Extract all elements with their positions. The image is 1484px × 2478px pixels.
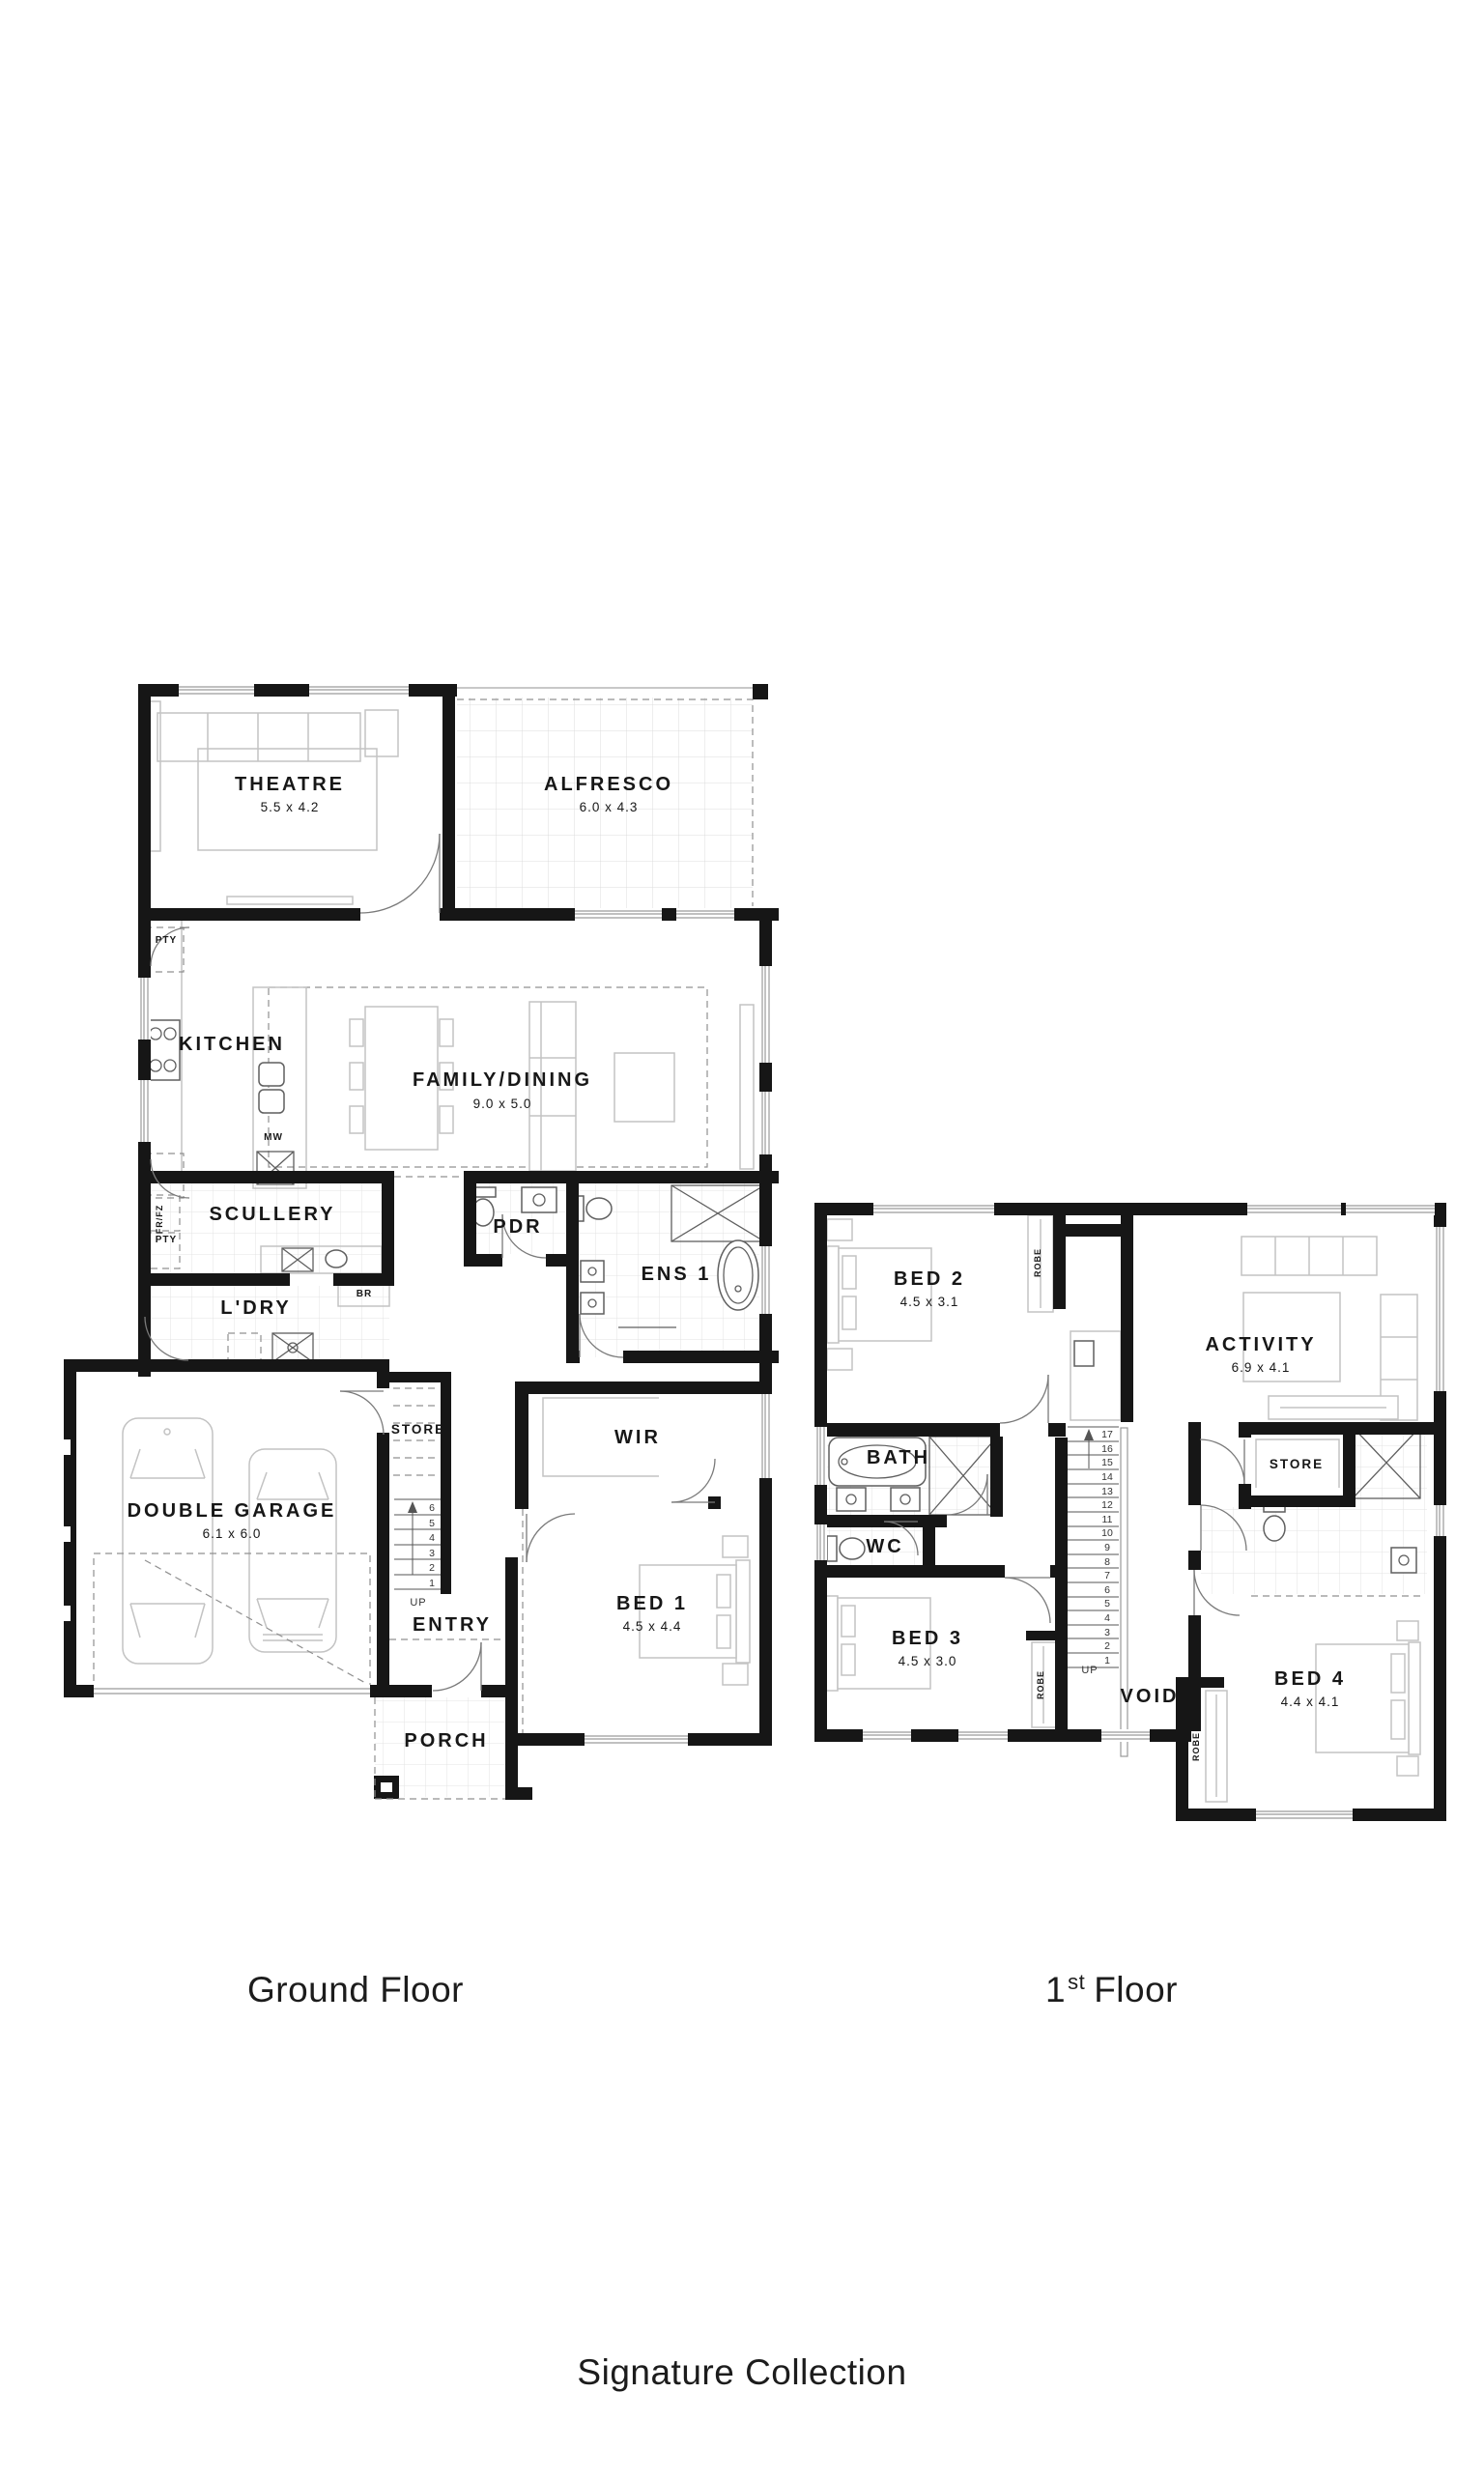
room-dims-bed4: 4.4 x 4.1 — [1281, 1695, 1340, 1709]
first-floor-ordinal: st — [1068, 1970, 1085, 1994]
stair-number: 12 — [1101, 1499, 1113, 1511]
window — [759, 1394, 772, 1478]
stair-number: 2 — [1104, 1640, 1110, 1652]
room-label-family-dining: FAMILY/DINING — [413, 1069, 592, 1091]
window — [1256, 1809, 1353, 1821]
first-floor-word: Floor — [1094, 1970, 1178, 2009]
room-label-store-ground: STORE — [391, 1422, 445, 1437]
stair-number: 1 — [429, 1578, 435, 1589]
window — [585, 1733, 688, 1746]
stair-number: 5 — [429, 1518, 435, 1529]
theatre-sofa — [157, 713, 360, 761]
stair-number: 3 — [1104, 1627, 1110, 1638]
ens2-basin — [1391, 1548, 1416, 1573]
room-dims-bed1: 4.5 x 4.4 — [623, 1619, 682, 1634]
car-2 — [249, 1449, 336, 1652]
bed4-side-table-2 — [1397, 1756, 1418, 1776]
room-dims-theatre: 5.5 x 4.2 — [261, 800, 320, 814]
bed2-headboard — [827, 1246, 839, 1343]
bed2-pillow-1 — [842, 1256, 856, 1289]
bed2-side-table-2 — [827, 1349, 852, 1370]
ens1-basin-1 — [581, 1261, 604, 1282]
stair-number: 13 — [1101, 1486, 1113, 1497]
room-label-entry: ENTRY — [413, 1614, 492, 1636]
stair-arrow-head — [1084, 1429, 1094, 1440]
window — [873, 1203, 994, 1215]
stair-number: 5 — [1104, 1598, 1110, 1609]
floorplan-canvas: THEATRE 5.5 x 4.2 ALFRESCO 6.0 x 4.3 KIT… — [0, 0, 1484, 2473]
kitchen-island — [253, 987, 306, 1188]
bed1-side-table-2 — [723, 1664, 748, 1685]
bed3-pillow-1 — [842, 1606, 855, 1637]
stair-arrow-head — [408, 1501, 417, 1513]
window — [759, 966, 772, 1063]
bed3-pillow-2 — [842, 1644, 855, 1675]
bed3-headboard — [826, 1596, 838, 1691]
stair-number: 2 — [429, 1562, 435, 1574]
stair-number: 4 — [1104, 1612, 1110, 1624]
room-dims-bed3: 4.5 x 3.0 — [899, 1654, 957, 1668]
stair-number: 8 — [1104, 1556, 1110, 1568]
window — [759, 1246, 772, 1314]
garage-door-opening — [94, 1685, 370, 1697]
floorplan-page: THEATRE 5.5 x 4.2 ALFRESCO 6.0 x 4.3 KIT… — [0, 0, 1484, 2473]
room-label-bed2: BED 2 — [894, 1268, 965, 1290]
room-label-pdr: PDR — [493, 1216, 542, 1238]
room-label-kitchen: KITCHEN — [179, 1034, 285, 1055]
first-floor-number: 1 — [1045, 1970, 1066, 2009]
wc-toilet-tank — [827, 1536, 837, 1561]
room-label-wc: WC — [866, 1536, 903, 1557]
room-label-wir: WIR — [614, 1427, 661, 1448]
car-1 — [123, 1418, 213, 1664]
window — [1434, 1505, 1446, 1536]
window — [309, 684, 409, 697]
window — [179, 684, 254, 697]
kitchen-sink-2 — [259, 1090, 284, 1113]
caption-ground-floor: Ground Floor — [247, 1970, 464, 2009]
window — [1247, 1203, 1341, 1215]
room-label-bed4: BED 4 — [1274, 1668, 1346, 1690]
stair-balustrade — [1121, 1428, 1127, 1756]
annotation-pty-bottom: PTY — [156, 1235, 177, 1245]
room-dims-bed2: 4.5 x 3.1 — [900, 1295, 959, 1309]
room-label-bed1: BED 1 — [616, 1593, 688, 1614]
annotation-microwave: MW — [264, 1132, 283, 1143]
desk-monitor — [1074, 1341, 1094, 1366]
pdr-basin — [522, 1187, 556, 1212]
window — [759, 1092, 772, 1154]
room-dims-alfresco: 6.0 x 4.3 — [580, 800, 639, 814]
bed1-side-table-1 — [723, 1536, 748, 1557]
room-label-bed3: BED 3 — [892, 1628, 963, 1649]
bath-basin-2 — [891, 1488, 920, 1511]
ens1-wc-toilet — [586, 1198, 612, 1219]
bed1-pillow-2 — [717, 1615, 730, 1648]
stair-number: 14 — [1101, 1471, 1113, 1483]
window — [138, 978, 151, 1040]
ens2-toilet — [1264, 1516, 1285, 1541]
room-label-void: VOID — [1121, 1686, 1180, 1707]
ground-floor-plan: THEATRE 5.5 x 4.2 ALFRESCO 6.0 x 4.3 KIT… — [64, 684, 779, 1800]
window — [863, 1729, 911, 1742]
room-dims-family-dining: 9.0 x 5.0 — [473, 1097, 532, 1111]
stair-number: 15 — [1101, 1457, 1113, 1468]
room-label-ldry: L'DRY — [220, 1297, 291, 1319]
stair-number: 4 — [429, 1532, 435, 1544]
room-label-garage: DOUBLE GARAGE — [128, 1500, 337, 1522]
bed4-pillow-1 — [1391, 1654, 1405, 1693]
first-floor-plan: BED 2 4.5 x 3.1 ACTIVITY 6.9 x 4.1 BATH … — [814, 1203, 1446, 1821]
window — [814, 1524, 827, 1560]
window — [958, 1729, 1008, 1742]
room-label-scullery: SCULLERY — [209, 1204, 335, 1225]
room-label-store-first: STORE — [1270, 1457, 1324, 1471]
stair-number: 16 — [1101, 1443, 1113, 1455]
wc-toilet — [840, 1538, 865, 1559]
window — [575, 908, 662, 921]
bed1-headboard — [736, 1560, 750, 1663]
stair-number: 6 — [1104, 1584, 1110, 1596]
theatre-tv — [227, 897, 353, 904]
stair-number: 3 — [429, 1548, 435, 1559]
first-stairs — [1068, 1427, 1127, 1756]
room-label-ens1: ENS 1 — [642, 1264, 712, 1285]
window — [814, 1427, 827, 1485]
annotation-robe-bed3: ROBE — [1036, 1670, 1045, 1699]
room-label-bath: BATH — [867, 1447, 930, 1468]
caption-first-floor: 1stFloor — [1045, 1970, 1178, 2009]
room-label-theatre: THEATRE — [235, 774, 345, 795]
window — [1434, 1227, 1446, 1391]
room-label-porch: PORCH — [404, 1730, 488, 1752]
room-dims-activity: 6.9 x 4.1 — [1232, 1360, 1291, 1375]
bed2-side-table-1 — [827, 1219, 852, 1240]
bed4-pillow-2 — [1391, 1700, 1405, 1739]
window — [676, 908, 734, 921]
annotation-robe-bed2: ROBE — [1033, 1248, 1042, 1277]
garage-diagonal — [145, 1560, 367, 1684]
bath-basin-1 — [837, 1488, 866, 1511]
bed1-pillow-1 — [717, 1575, 730, 1608]
stair-number: 7 — [1104, 1570, 1110, 1581]
window — [1346, 1203, 1435, 1215]
stair-number: 17 — [1101, 1429, 1113, 1440]
stair-number: 6 — [429, 1502, 435, 1514]
bed4-headboard — [1409, 1642, 1420, 1754]
bed4-side-table-1 — [1397, 1621, 1418, 1640]
family-tv-unit — [740, 1005, 754, 1169]
annotation-robe-bed4: ROBE — [1191, 1732, 1201, 1761]
annotation-fridge: FR/FZ — [155, 1205, 164, 1235]
annotation-up-ground: UP — [410, 1597, 426, 1609]
kitchen-sink-1 — [259, 1063, 284, 1086]
stair-number: 9 — [1104, 1542, 1110, 1553]
window — [138, 1080, 151, 1142]
room-label-activity: ACTIVITY — [1205, 1334, 1316, 1355]
theatre-armchair — [365, 710, 398, 756]
window — [1101, 1729, 1150, 1742]
caption-collection: Signature Collection — [577, 2352, 906, 2392]
annotation-up-first: UP — [1081, 1665, 1098, 1676]
room-dims-garage: 6.1 x 6.0 — [203, 1526, 262, 1541]
ens1-basin-2 — [581, 1293, 604, 1314]
stair-number: 10 — [1101, 1527, 1113, 1539]
annotation-broom: BR — [357, 1289, 372, 1299]
scullery-basin — [326, 1250, 347, 1267]
captions: Ground Floor 1stFloor Signature Collecti… — [247, 1970, 1178, 2392]
room-label-alfresco: ALFRESCO — [544, 774, 673, 795]
bed2-pillow-2 — [842, 1296, 856, 1329]
stair-number: 11 — [1102, 1514, 1113, 1525]
family-rug — [614, 1053, 674, 1122]
stair-number: 1 — [1104, 1655, 1110, 1666]
annotation-pty-top: PTY — [156, 935, 177, 946]
